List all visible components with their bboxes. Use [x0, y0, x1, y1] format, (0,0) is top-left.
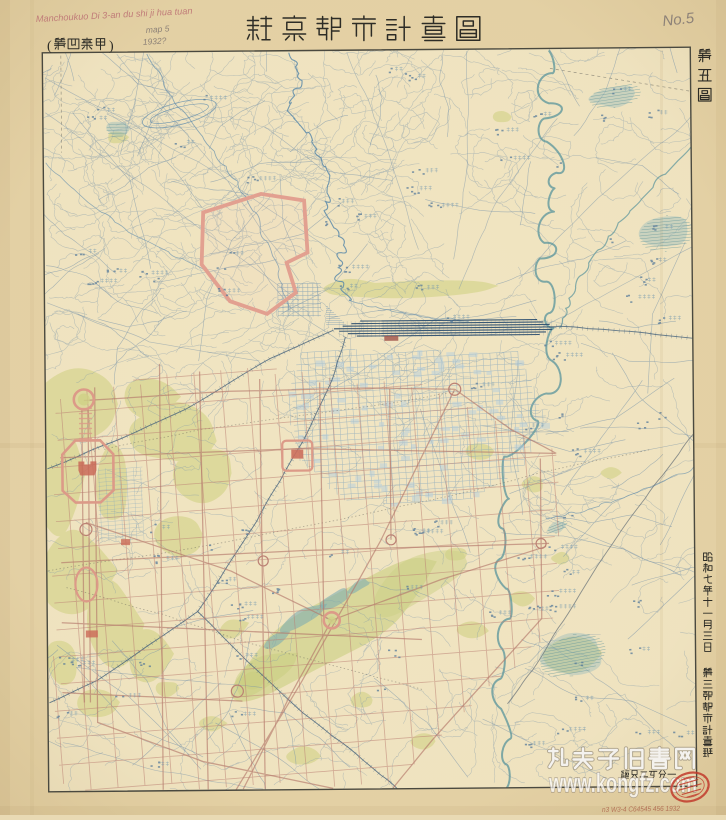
svg-text:No.5: No.5	[662, 10, 696, 30]
svg-text:(: (	[47, 39, 52, 54]
svg-text:1932?: 1932?	[142, 35, 167, 47]
svg-text:www.kongfz.com: www.kongfz.com	[548, 768, 697, 798]
svg-text:): )	[109, 39, 114, 54]
svg-text:n3 W3-4 C64545 456 1932: n3 W3-4 C64545 456 1932	[602, 804, 680, 814]
svg-text:map 5: map 5	[145, 23, 170, 35]
